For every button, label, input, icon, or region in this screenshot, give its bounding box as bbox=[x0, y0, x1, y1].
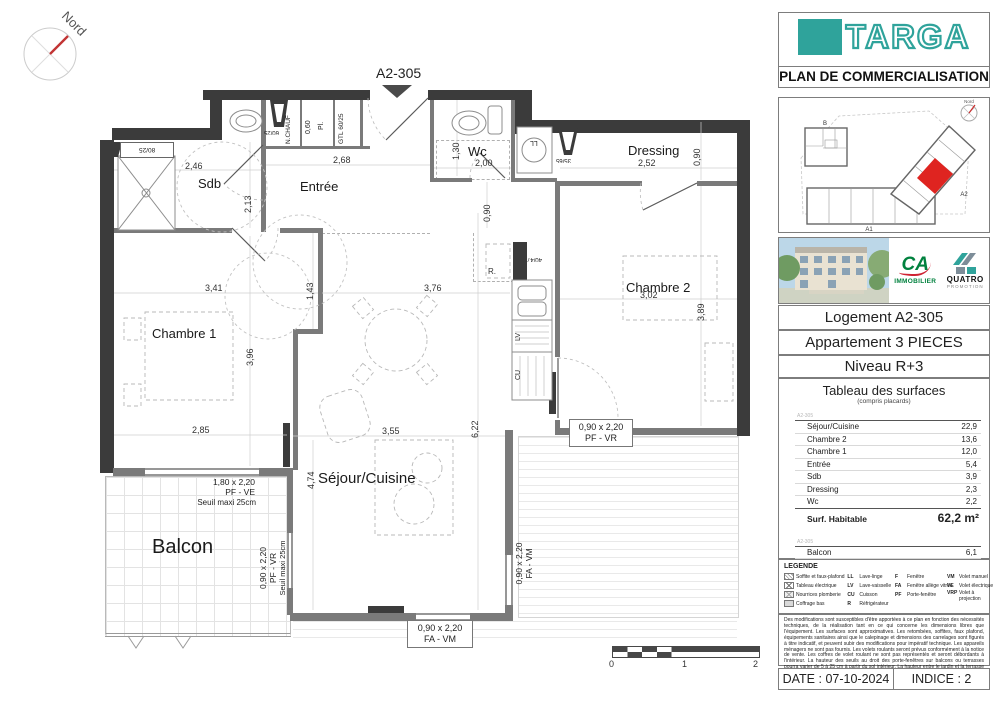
window2-labels: 0,90 x 2,20 PF - VR Seuil maxi 25cm bbox=[258, 522, 288, 614]
soffite-icon bbox=[784, 573, 794, 580]
room-label-entree: Entrée bbox=[300, 179, 338, 194]
keyplan-north-label: Nord bbox=[964, 99, 974, 104]
entree-sejour-limit bbox=[322, 233, 430, 234]
wall-top-right bbox=[428, 90, 516, 100]
brand-name: TARGA bbox=[846, 19, 971, 55]
room-label-sdb: Sdb bbox=[198, 176, 221, 191]
closet-divider-1 bbox=[300, 100, 302, 146]
wall-sejour-right-a bbox=[505, 430, 513, 555]
commercialisation-sheet: Nord A2-305 bbox=[0, 0, 1000, 706]
table-row: Chambre 213,6 bbox=[795, 434, 981, 447]
scale-bar-checker bbox=[613, 647, 686, 657]
wall-sejour-bottom-a bbox=[290, 613, 416, 621]
wall-ch1-right-lower bbox=[293, 334, 298, 470]
window2-seuil: Seuil maxi 25cm bbox=[278, 522, 288, 614]
keyplan-building-a1-label: A1 bbox=[865, 227, 873, 232]
room-label-dressing: Dressing bbox=[628, 143, 679, 158]
window4-labels: 0,90 x 2,20 FA - VM bbox=[514, 521, 534, 606]
wall-right bbox=[737, 120, 750, 436]
window5-labelbox: 0,90 x 2,20 PF - VR bbox=[569, 419, 633, 447]
wall-ch1-right-upper bbox=[318, 228, 323, 334]
wall-topleft-horizontal bbox=[112, 128, 222, 140]
type-label: Appartement 3 PIECES bbox=[779, 331, 989, 355]
logo-box: TARGA bbox=[778, 12, 990, 67]
radiator-sejour-left bbox=[283, 423, 290, 467]
wall-ch2-left-upper bbox=[555, 181, 560, 357]
wall-left bbox=[100, 140, 114, 473]
dim-ch2-width: 3,02 bbox=[640, 290, 658, 300]
keyplan-box: Nord B A1 A2 bbox=[778, 97, 990, 233]
dim-sdb-height: 2,13 bbox=[243, 195, 253, 213]
window5-dim: 0,90 x 2,20 bbox=[570, 422, 632, 433]
dim-entree-width: 2,68 bbox=[333, 155, 351, 165]
lavevaisselle-label: LV bbox=[515, 333, 522, 341]
dim-dressing-width: 2,52 bbox=[638, 158, 656, 168]
scale-bar-solid bbox=[686, 647, 759, 657]
quatro-logo-sublabel: PROMOTION bbox=[947, 284, 984, 289]
dim-ch1-height: 3,96 bbox=[245, 348, 255, 366]
date-indice-box: DATE : 07-10-2024 INDICE : 2 bbox=[778, 668, 990, 690]
unit-marker-label: A2-305 bbox=[376, 65, 421, 81]
wall-wc-right bbox=[511, 100, 515, 182]
sheet-title: PLAN DE COMMERCIALISATION bbox=[779, 67, 989, 87]
room-label-chambre2: Chambre 2 bbox=[626, 280, 690, 295]
surfaces-subtitle: (compris placards) bbox=[779, 398, 989, 405]
dim-sejour-height: 6,22 bbox=[470, 420, 480, 438]
annex-unit-ref: A2-305 bbox=[797, 539, 989, 545]
logement-label: Logement A2-305 bbox=[779, 306, 989, 330]
fridge-label: R. bbox=[488, 267, 496, 276]
scale-tick-2: 2 bbox=[753, 659, 758, 669]
logement-box: Logement A2-305 bbox=[778, 305, 990, 330]
closet-front bbox=[266, 146, 370, 149]
wall-sdb-bottom bbox=[114, 228, 232, 233]
wall-wc-bottom bbox=[430, 178, 472, 182]
window2-type: PF - VR bbox=[268, 522, 278, 614]
window3-labelbox: 0,90 x 2,20 FA - VM bbox=[407, 620, 473, 648]
window5-type: PF - VR bbox=[570, 433, 632, 444]
room-label-wc: Wc bbox=[468, 144, 487, 159]
soffite-80-25: 80/25 bbox=[120, 142, 174, 158]
wall-ch2-bottom-b bbox=[630, 428, 737, 435]
building-photo bbox=[779, 238, 889, 303]
wall-dressing-top bbox=[528, 120, 750, 133]
table-row: Séjour/Cuisine22,9 bbox=[795, 420, 981, 434]
window2-dim: 0,90 x 2,20 bbox=[258, 522, 268, 614]
window1-dim: 1,80 x 2,20 bbox=[175, 477, 255, 487]
nourrices-plomberie-icon bbox=[784, 591, 794, 598]
wall-connector bbox=[210, 100, 222, 130]
quatro-logo-icon bbox=[953, 253, 977, 275]
dim-sejour-width2: 3,55 bbox=[382, 426, 400, 436]
room-label-sejour: Séjour/Cuisine bbox=[318, 470, 416, 487]
quatro-logo: QUATRO PROMOTION bbox=[947, 253, 984, 289]
lavelinge-label: LL bbox=[530, 139, 538, 146]
dim-sdb-width: 2,46 bbox=[185, 161, 203, 171]
soffite-block-kitchen bbox=[513, 242, 527, 280]
wall-dressing-bottom-right bbox=[697, 181, 737, 186]
window1-type: PF - VE bbox=[175, 487, 255, 497]
niveau-label: Niveau R+3 bbox=[779, 356, 989, 378]
table-row: Sdb3,9 bbox=[795, 471, 981, 484]
niveau-box: Niveau R+3 bbox=[778, 355, 990, 378]
surfaces-title: Tableau des surfaces bbox=[779, 383, 989, 398]
wall-dressing-bottom-left bbox=[560, 181, 642, 186]
placard-dim-label: 0,60 bbox=[305, 120, 312, 134]
dim-ch1-width: 3,41 bbox=[205, 283, 223, 293]
dim-ch2-height: 3,89 bbox=[696, 303, 706, 321]
terrace-hatch bbox=[518, 436, 739, 618]
indice-label: INDICE : 2 bbox=[893, 669, 989, 689]
room-label-chambre1: Chambre 1 bbox=[152, 326, 216, 341]
legend-col-shutters: VMVolet manuel VEVolet électrique VRPVol… bbox=[947, 572, 989, 608]
dim-dressing-height: 0,90 bbox=[692, 148, 702, 166]
closet-divider-2 bbox=[333, 100, 335, 146]
soffite-40-47: 40/47 bbox=[527, 256, 542, 262]
window3-type: FA - VM bbox=[408, 634, 472, 645]
coffrage-bas-icon bbox=[784, 600, 794, 607]
surfaces-box: Tableau des surfaces (compris placards) … bbox=[778, 378, 990, 559]
nchauf-label: N.CHAUF bbox=[285, 115, 292, 144]
type-box: Appartement 3 PIECES bbox=[778, 330, 990, 355]
wall-wc-left bbox=[430, 100, 434, 182]
dim-entree-height: 1,43 bbox=[305, 282, 315, 300]
cuisson-label: CU bbox=[515, 370, 522, 380]
window4-type: FA - VM bbox=[524, 521, 534, 606]
tableau-electrique-icon bbox=[784, 582, 794, 589]
soffite-60-25: 60/25 bbox=[264, 129, 279, 135]
dim-wc-width: 2,00 bbox=[475, 158, 493, 168]
surfaces-total-row: Surf. Habitable 62,2 m² bbox=[795, 509, 981, 525]
wall-sejour-right-b bbox=[505, 605, 513, 621]
date-label: DATE : 07-10-2024 bbox=[779, 669, 893, 689]
window1-seuil: Seuil maxi 25cm bbox=[168, 498, 256, 507]
ca-logo-icon: CA bbox=[899, 256, 930, 276]
keyplan-drawing: Nord B A1 A2 bbox=[779, 98, 989, 232]
dim-sejour-height2: 4,74 bbox=[306, 471, 316, 489]
window-ch1 bbox=[145, 468, 259, 476]
legend-col-appliances: LLLave-linge LVLave-vaisselle CUCuisson … bbox=[847, 572, 895, 608]
ca-immobilier-logo: CA IMMOBILIER bbox=[894, 256, 936, 285]
radiator-sejour-bottom bbox=[368, 606, 404, 613]
table-row: Dressing2,3 bbox=[795, 484, 981, 497]
scale-bar bbox=[612, 646, 760, 658]
surfaces-unit-ref: A2-305 bbox=[797, 413, 989, 419]
photo-logos-box: CA IMMOBILIER QUATRO PROMOTION bbox=[778, 237, 990, 304]
soffite-35-65: 35/65 bbox=[556, 157, 571, 163]
targa-logo-icon bbox=[798, 19, 842, 55]
legend-col-symbols: Soffite et faux-plafond Tableau électriq… bbox=[784, 572, 847, 608]
keyplan-building-a2-label: A2 bbox=[960, 192, 968, 198]
window4-dim: 0,90 x 2,20 bbox=[514, 521, 524, 606]
wall-ch1-bottom-a bbox=[113, 468, 145, 476]
wall-sdb-divider bbox=[261, 100, 266, 232]
subtitle-box: PLAN DE COMMERCIALISATION bbox=[778, 66, 990, 88]
north-label: Nord bbox=[59, 8, 90, 39]
gtl-label: GTL 60/25 bbox=[338, 114, 345, 144]
dim-wc-height: 1,30 bbox=[451, 142, 461, 160]
unit-entry-arrow-icon bbox=[382, 85, 412, 98]
closet-right bbox=[360, 100, 363, 146]
disclaimer-box: Des modifications sont susceptibles d'êt… bbox=[778, 614, 990, 666]
legend-title: LEGENDE bbox=[784, 563, 989, 570]
dim-ch1-width2: 2,85 bbox=[192, 425, 210, 435]
wall-ll-bottom bbox=[515, 178, 557, 182]
room-label-balcon: Balcon bbox=[152, 536, 213, 559]
window3-dim: 0,90 x 2,20 bbox=[408, 623, 472, 634]
table-row: Entrée5,4 bbox=[795, 459, 981, 472]
walkway-hatch bbox=[293, 621, 737, 641]
wall-ch1-bottom-b bbox=[259, 468, 293, 476]
ca-logo-label: IMMOBILIER bbox=[894, 278, 936, 285]
surfaces-table: Séjour/Cuisine22,9 Chambre 213,6 Chambre… bbox=[795, 420, 981, 525]
dim-sejour-width: 3,76 bbox=[424, 283, 442, 293]
wall-top-left bbox=[203, 90, 370, 100]
table-row: Chambre 112,0 bbox=[795, 446, 981, 459]
placard-label: Pl. bbox=[318, 122, 325, 130]
window-sejour-right bbox=[505, 555, 513, 605]
legend-box: LEGENDE Soffite et faux-plafond Tableau … bbox=[778, 559, 990, 614]
table-row: Balcon6,1 bbox=[795, 546, 981, 560]
legend-col-windows: FFenêtre FAFenêtre allège vitrée PFPorte… bbox=[895, 572, 947, 608]
targa-logo: TARGA bbox=[779, 13, 989, 55]
keyplan-building-b-label: B bbox=[823, 121, 827, 127]
table-row: Wc2,2 bbox=[795, 496, 981, 509]
dim-hall-height: 0,90 bbox=[482, 204, 492, 222]
scale-tick-1: 1 bbox=[682, 659, 687, 669]
radiator-chambre2 bbox=[549, 372, 556, 414]
wall-ch1-top-stub bbox=[280, 228, 322, 233]
quatro-logo-label: QUATRO bbox=[947, 275, 984, 284]
scale-tick-0: 0 bbox=[609, 659, 614, 669]
